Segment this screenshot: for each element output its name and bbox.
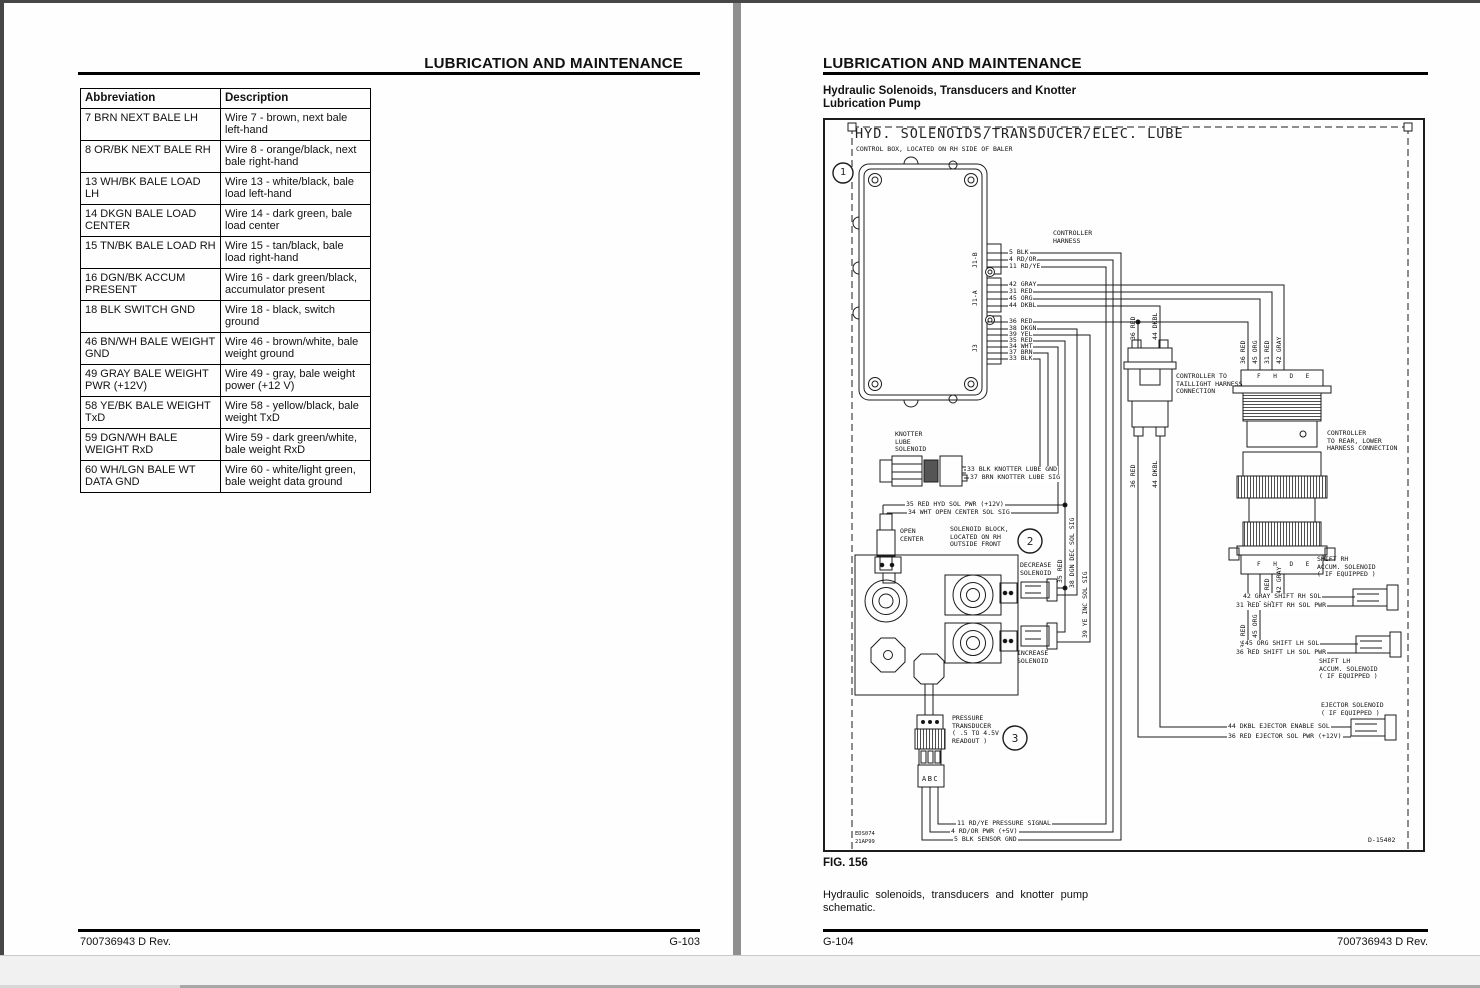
controller-harness-label: CONTROLLER HARNESS	[1053, 230, 1092, 245]
cell-desc: Wire 14 - dark green, bale load center	[221, 204, 371, 236]
taillight-connection-label: CONTROLLER TO TAILLIGHT HARNESS CONNECTI…	[1176, 373, 1243, 396]
callout-3: 3	[1003, 732, 1027, 745]
connector-j1b-label: J1-B	[971, 252, 979, 268]
wire-label-45-org-vertical: 45 ORG	[1251, 615, 1259, 638]
connector-j3-label: J3	[971, 344, 979, 352]
table-row: 58 YE/BK BALE WEIGHT TxDWire 58 - yellow…	[81, 396, 371, 428]
drawing-code-eds: EDS074	[855, 831, 875, 839]
wire-label-45-org-vertical: 45 ORG	[1251, 341, 1259, 364]
cell-desc: Wire 46 - brown/white, bale weight groun…	[221, 332, 371, 364]
cell-desc: Wire 18 - black, switch ground	[221, 300, 371, 332]
wire-label-open-center-sig: 34 WHT OPEN CENTER SOL SIG	[907, 509, 1011, 517]
cell-desc: Wire 7 - brown, next bale left-hand	[221, 108, 371, 140]
left-footer-docnum: 700736943 D Rev.	[80, 936, 171, 948]
callout-2: 2	[1018, 535, 1042, 548]
wire-abbreviation-table: Abbreviation Description 7 BRN NEXT BALE…	[80, 88, 371, 493]
table-row: 16 DGN/BK ACCUM PRESENTWire 16 - dark gr…	[81, 268, 371, 300]
viewer-toolbar: ◀◀ ◀ 399 / 620 ▾ ▶ ▶▶	[0, 955, 1480, 985]
drawing-number: D-15402	[1368, 837, 1395, 845]
wire-label-knotter-sig: 37 BRN KNOTTER LUBE SIG	[969, 474, 1061, 482]
cell-abbr: 8 OR/BK NEXT BALE RH	[81, 140, 221, 172]
cell-desc: Wire 60 - white/light green, bale weight…	[221, 460, 371, 492]
table-row: 13 WH/BK BALE LOAD LHWire 13 - white/bla…	[81, 172, 371, 204]
right-footer-docnum: 700736943 D Rev.	[1278, 936, 1428, 948]
table-row: 18 BLK SWITCH GNDWire 18 - black, switch…	[81, 300, 371, 332]
cell-desc: Wire 59 - dark green/white, bale weight …	[221, 428, 371, 460]
wire-label-44-dkbl: 44 DKBL	[1008, 302, 1037, 310]
cell-abbr: 58 YE/BK BALE WEIGHT TxD	[81, 396, 221, 428]
pdf-viewer-window: LUBRICATION AND MAINTENANCE Abbreviation…	[0, 0, 1480, 988]
cell-abbr: 60 WH/LGN BALE WT DATA GND	[81, 460, 221, 492]
right-title-rule	[823, 72, 1428, 75]
wire-label-33-blk: 33 BLK	[1008, 355, 1033, 363]
cell-abbr: 14 DKGN BALE LOAD CENTER	[81, 204, 221, 236]
ejector-solenoid-label: EJECTOR SOLENOID ( IF EQUIPPED )	[1321, 702, 1384, 717]
callout-1: 1	[833, 167, 853, 178]
table-row: 15 TN/BK BALE LOAD RHWire 15 - tan/black…	[81, 236, 371, 268]
wiring-diagram-art	[823, 118, 1425, 852]
wire-label-shift-lh-sol: 45 ORG SHIFT LH SOL	[1244, 640, 1320, 648]
left-footer-rule	[78, 929, 700, 932]
table-row: 59 DGN/WH BALE WEIGHT RxDWire 59 - dark …	[81, 428, 371, 460]
wire-label-shift-lh-pwr: 36 RED SHIFT LH SOL PWR	[1235, 649, 1327, 657]
wire-label-44-dkbl-vertical: 44 DKBL	[1151, 313, 1159, 340]
section-subtitle: Hydraulic Solenoids, Transducers and Kno…	[823, 85, 1076, 111]
cell-desc: Wire 58 - yellow/black, bale weight TxD	[221, 396, 371, 428]
cell-abbr: 13 WH/BK BALE LOAD LH	[81, 172, 221, 204]
wire-label-dec-sol-sig-vertical: 38 DGN DEC SOL SIG	[1068, 518, 1076, 588]
right-footer-pagenum: G-104	[823, 936, 854, 948]
cell-abbr: 49 GRAY BALE WEIGHT PWR (+12V)	[81, 364, 221, 396]
wire-label-42-gray-vertical: 42 GRAY	[1275, 337, 1283, 364]
table-row: 49 GRAY BALE WEIGHT PWR (+12V)Wire 49 - …	[81, 364, 371, 396]
cell-desc: Wire 13 - white/black, bale load left-ha…	[221, 172, 371, 204]
wire-label-11-rdye: 11 RD/YE	[1008, 263, 1041, 271]
table-row: 7 BRN NEXT BALE LHWire 7 - brown, next b…	[81, 108, 371, 140]
cell-abbr: 18 BLK SWITCH GND	[81, 300, 221, 332]
knotter-lube-solenoid-label: KNOTTER LUBE SOLENOID	[895, 431, 926, 454]
left-page-title: LUBRICATION AND MAINTENANCE	[300, 55, 683, 72]
increase-solenoid-label: INCREASE SOLENOID	[1017, 650, 1048, 665]
cell-abbr: 59 DGN/WH BALE WEIGHT RxD	[81, 428, 221, 460]
cell-abbr: 46 BN/WH BALE WEIGHT GND	[81, 332, 221, 364]
table-row: 14 DKGN BALE LOAD CENTERWire 14 - dark g…	[81, 204, 371, 236]
shift-rh-solenoid-label: SHIFT RH ACCUM. SOLENOID ( IF EQUIPPED )	[1317, 556, 1376, 579]
wire-label-36-red-vertical: 36 RED	[1129, 465, 1137, 488]
wire-label-shift-rh-pwr: 31 RED SHIFT RH SOL PWR	[1235, 602, 1327, 610]
figure-caption: Hydraulic solenoids, transducers and kno…	[823, 889, 1125, 915]
right-page-title: LUBRICATION AND MAINTENANCE	[823, 55, 1082, 72]
wire-label-shift-rh-sol: 42 GRAY SHIFT RH SOL	[1242, 593, 1322, 601]
table-header-description: Description	[221, 89, 371, 109]
rear-lower-connection-label: CONTROLLER TO REAR, LOWER HARNESS CONNEC…	[1327, 430, 1397, 453]
cell-desc: Wire 16 - dark green/black, accumulator …	[221, 268, 371, 300]
wire-label-sensor-gnd: 5 BLK SENSOR GND	[953, 836, 1018, 844]
wire-label-42-gray-vertical: 42 GRAY	[1275, 567, 1283, 594]
solenoid-block-label: SOLENOID BLOCK, LOCATED ON RH OUTSIDE FR…	[950, 526, 1009, 549]
figure-label: FIG. 156	[823, 857, 868, 869]
table-header-abbreviation: Abbreviation	[81, 89, 221, 109]
wire-label-ejector-enable: 44 DKBL EJECTOR ENABLE SOL	[1227, 723, 1331, 731]
cell-abbr: 16 DGN/BK ACCUM PRESENT	[81, 268, 221, 300]
open-center-label: OPEN CENTER	[900, 528, 923, 543]
cell-desc: Wire 15 - tan/black, bale load right-han…	[221, 236, 371, 268]
left-title-rule	[78, 72, 700, 75]
pressure-transducer-label: PRESSURE TRANSDUCER ( .5 TO 4.5V READOUT…	[952, 715, 999, 745]
transducer-abc-pins: ABC	[922, 776, 939, 784]
shift-lh-solenoid-label: SHIFT LH ACCUM. SOLENOID ( IF EQUIPPED )	[1319, 658, 1378, 681]
table-row: 8 OR/BK NEXT BALE RHWire 8 - orange/blac…	[81, 140, 371, 172]
cell-abbr: 15 TN/BK BALE LOAD RH	[81, 236, 221, 268]
left-footer-pagenum: G-103	[600, 936, 700, 948]
wire-label-ejector-pwr: 36 RED EJECTOR SOL PWR (+12V)	[1227, 733, 1343, 741]
right-footer-rule	[823, 929, 1428, 932]
wire-label-35-red-vertical: 35 RED	[1056, 560, 1064, 583]
diagram-note: CONTROL BOX, LOCATED ON RH SIDE OF BALER	[856, 146, 1013, 154]
decrease-solenoid-label: DECREASE SOLENOID	[1020, 562, 1051, 577]
connector-pins-fhde: F H D E	[1257, 561, 1311, 569]
table-row: 60 WH/LGN BALE WT DATA GNDWire 60 - whit…	[81, 460, 371, 492]
wire-label-31-red-vertical: 31 RED	[1263, 341, 1271, 364]
wire-label-36-red-vertical: 36 RED	[1239, 341, 1247, 364]
connector-pins-fhde: F H D E	[1257, 373, 1311, 381]
connector-j1a-label: J1-A	[971, 290, 979, 306]
cell-desc: Wire 8 - orange/black, next bale right-h…	[221, 140, 371, 172]
wiring-diagram: HYD. SOLENOIDS/TRANSDUCER/ELEC. LUBE CON…	[823, 118, 1425, 852]
wire-label-36-red-vertical: 36 RED	[1129, 317, 1137, 340]
cell-abbr: 7 BRN NEXT BALE LH	[81, 108, 221, 140]
table-row: 46 BN/WH BALE WEIGHT GNDWire 46 - brown/…	[81, 332, 371, 364]
drawing-code-date: 21AP99	[855, 839, 875, 847]
wire-label-inc-sol-sig-vertical: 39 YE INC SOL SIG	[1081, 571, 1089, 638]
cell-desc: Wire 49 - gray, bale weight power (+12 V…	[221, 364, 371, 396]
wire-label-44-dkbl-vertical: 44 DKBL	[1151, 461, 1159, 488]
diagram-title: HYD. SOLENOIDS/TRANSDUCER/ELEC. LUBE	[855, 126, 1184, 142]
